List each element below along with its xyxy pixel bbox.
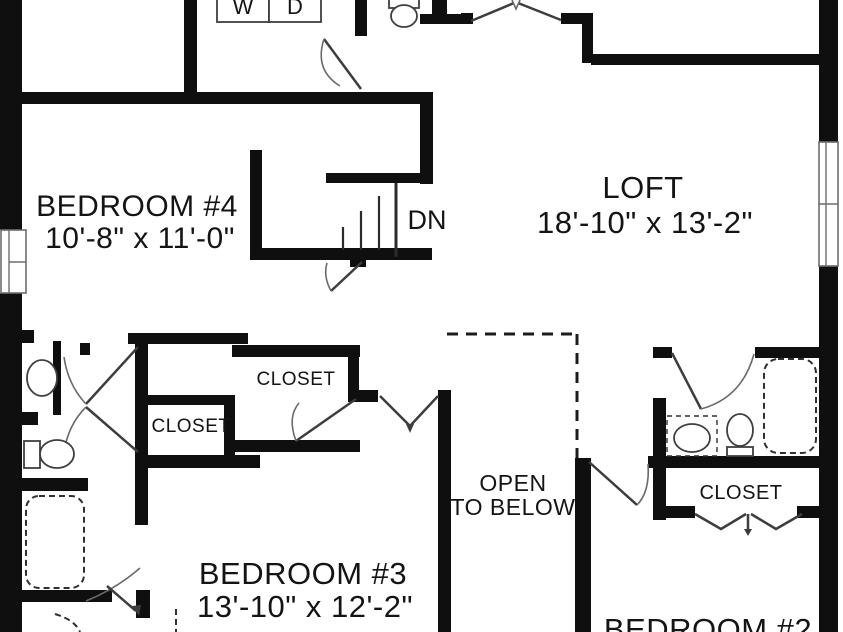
wall-segment (250, 150, 262, 260)
window-right (819, 142, 838, 266)
open-to-below-boundary (447, 334, 577, 458)
wall-segment (0, 330, 34, 343)
bedroom2-closet-label: CLOSET (699, 482, 782, 504)
wall-segment (184, 0, 197, 93)
wall-segment (16, 478, 88, 491)
wall-segment (16, 412, 38, 425)
wall-segment (648, 456, 838, 468)
wall-segment (326, 173, 420, 183)
wall-segment (148, 395, 235, 405)
hall-bath-toilet-fixture (24, 440, 74, 468)
bifold-door (695, 514, 802, 536)
stair-door (326, 262, 362, 291)
bedroom4-dims: 10'-8" x 11'-0" (45, 222, 235, 255)
closet-door (292, 399, 356, 441)
dryer-label: D (287, 0, 303, 19)
stairs-down (343, 183, 396, 257)
bedroom3-dims: 13'-10" x 12'-2" (197, 589, 413, 624)
wall-segment (653, 347, 672, 358)
bedroom3-label: BEDROOM #3 (199, 556, 407, 591)
floor-plan-svg: BEDROOM #4 10'-8" x 11'-0" LOFT 18'-10" … (0, 0, 843, 632)
wall-segment (232, 440, 360, 452)
wall-segment (653, 506, 695, 518)
wall-segment (461, 13, 473, 23)
hall-bath-sink-fixture (27, 360, 57, 396)
wall-segment (135, 333, 148, 525)
wall-segment (0, 0, 22, 230)
loft-dims: 18'-10" x 13'-2" (537, 205, 753, 240)
hall-bath-vanity-fixture (55, 609, 176, 632)
loft-label: LOFT (602, 170, 683, 205)
bedroom4-label: BEDROOM #4 (36, 190, 238, 223)
laundry-door (321, 39, 361, 89)
double-door-top (471, 0, 561, 21)
bedroom2-bath-door (672, 353, 754, 409)
wall-segment (0, 92, 433, 104)
stairs-dn-label: DN (408, 205, 447, 235)
closet-upper-label: CLOSET (256, 369, 335, 390)
open-to-below-line2: TO BELOW (451, 494, 576, 520)
wall-segment (0, 293, 22, 632)
wall-segment (250, 248, 432, 260)
hall-bath-door-lower (64, 407, 138, 452)
toilet-top-fixture (389, 0, 419, 27)
wall-segment (575, 458, 591, 632)
bedroom3-door (380, 396, 438, 433)
wall-segment (591, 54, 838, 65)
wall-segment (797, 506, 838, 518)
wall-segment (755, 347, 838, 358)
wall-segment (420, 104, 433, 184)
wall-segment (80, 343, 90, 355)
bedroom2-label: BEDROOM #2 (604, 612, 812, 632)
wall-segment (819, 266, 838, 632)
bedroom2-bath-tub-fixture (764, 359, 816, 453)
wall-segment (819, 0, 838, 142)
wall-segment (355, 0, 367, 36)
window-left (1, 230, 26, 293)
floor-plan: BEDROOM #4 10'-8" x 11'-0" LOFT 18'-10" … (0, 0, 843, 632)
washer-label: W (233, 0, 254, 19)
hall-bath-tub-fixture (26, 496, 84, 588)
hall-bath-door-upper (64, 347, 138, 404)
closet-lower-label: CLOSET (151, 416, 230, 437)
wall-segment (438, 390, 451, 632)
bedroom2-bath-toilet-fixture (727, 414, 753, 456)
bedroom2-door (589, 462, 648, 505)
open-to-below-line1: OPEN (479, 470, 546, 496)
wall-segment (232, 345, 360, 357)
wall-segment (135, 455, 260, 468)
walls (0, 0, 838, 632)
bedroom2-bath-sink-fixture (667, 416, 717, 456)
